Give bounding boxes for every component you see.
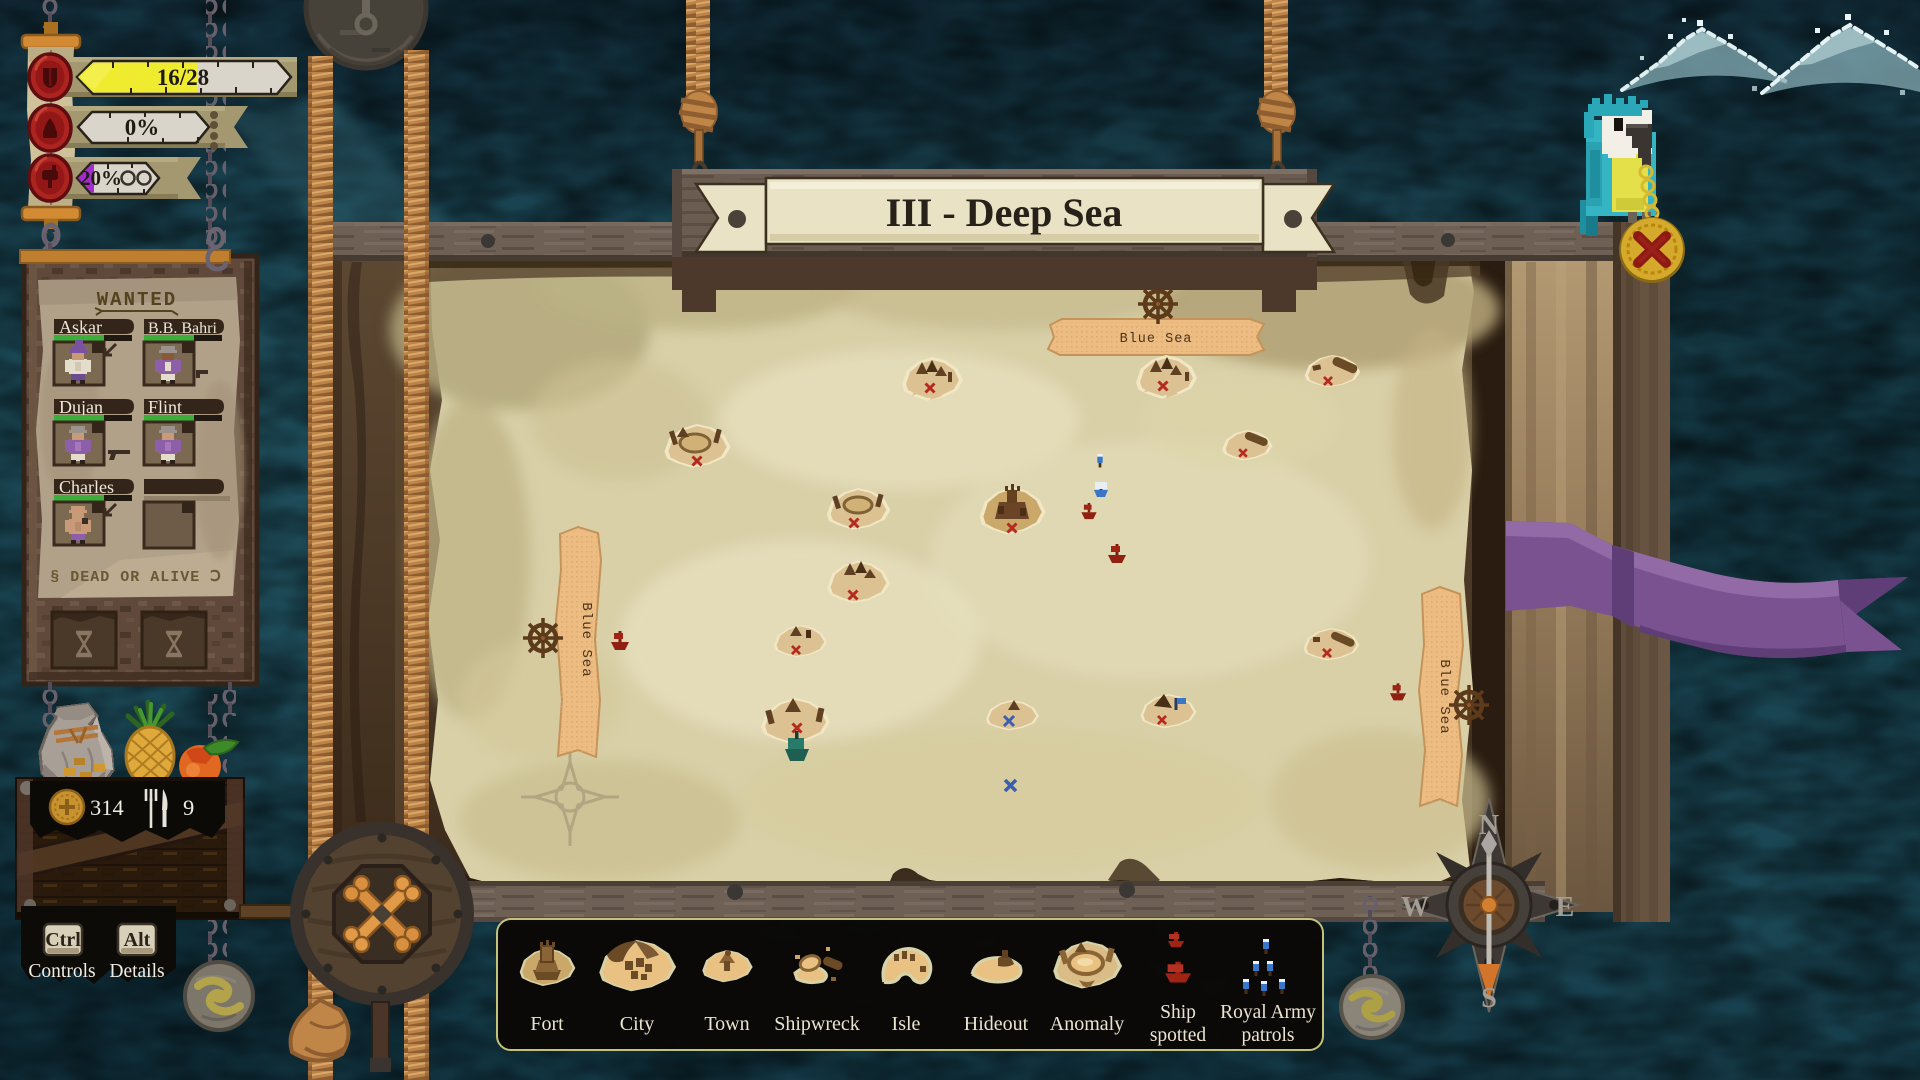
svg-text:Royal Army: Royal Army: [1220, 1002, 1316, 1023]
svg-text:Town: Town: [704, 1013, 749, 1035]
svg-text:spotted: spotted: [1150, 1025, 1207, 1046]
svg-text:patrols: patrols: [1241, 1025, 1294, 1046]
svg-text:Dujan: Dujan: [59, 397, 103, 417]
svg-text:Controls: Controls: [28, 961, 95, 982]
svg-text:E: E: [1556, 892, 1575, 923]
svg-text:314: 314: [90, 795, 124, 820]
svg-text:Blue Sea: Blue Sea: [1120, 332, 1193, 347]
svg-text:Hideout: Hideout: [964, 1013, 1029, 1035]
svg-text:20%: 20%: [80, 166, 122, 190]
svg-text:Details: Details: [109, 961, 164, 982]
svg-text:Blue Sea: Blue Sea: [578, 602, 594, 677]
svg-text:§ DEAD OR ALIVE Ↄ: § DEAD OR ALIVE Ↄ: [50, 569, 222, 586]
svg-text:Shipwreck: Shipwreck: [774, 1013, 860, 1035]
svg-text:S: S: [1481, 983, 1497, 1014]
svg-text:Charles: Charles: [59, 477, 114, 497]
svg-text:Ctrl: Ctrl: [45, 929, 81, 951]
svg-text:Blue Sea: Blue Sea: [1436, 659, 1452, 734]
svg-text:III - Deep Sea: III - Deep Sea: [886, 190, 1123, 235]
svg-text:16/28: 16/28: [157, 65, 209, 90]
svg-text:City: City: [620, 1013, 654, 1035]
svg-text:Alt: Alt: [124, 929, 151, 951]
svg-text:B.B. Bahri: B.B. Bahri: [148, 320, 217, 337]
svg-text:Flint: Flint: [148, 397, 182, 417]
svg-text:Isle: Isle: [892, 1013, 921, 1035]
svg-text:0%: 0%: [125, 115, 160, 140]
svg-text:Askar: Askar: [59, 317, 102, 337]
svg-text:W: W: [1401, 892, 1429, 923]
svg-text:N: N: [1479, 810, 1499, 841]
svg-text:Fort: Fort: [530, 1013, 564, 1035]
svg-text:Ship: Ship: [1160, 1002, 1196, 1023]
svg-text:9: 9: [183, 795, 194, 820]
svg-text:WANTED: WANTED: [97, 289, 177, 311]
svg-text:Anomaly: Anomaly: [1050, 1013, 1124, 1035]
